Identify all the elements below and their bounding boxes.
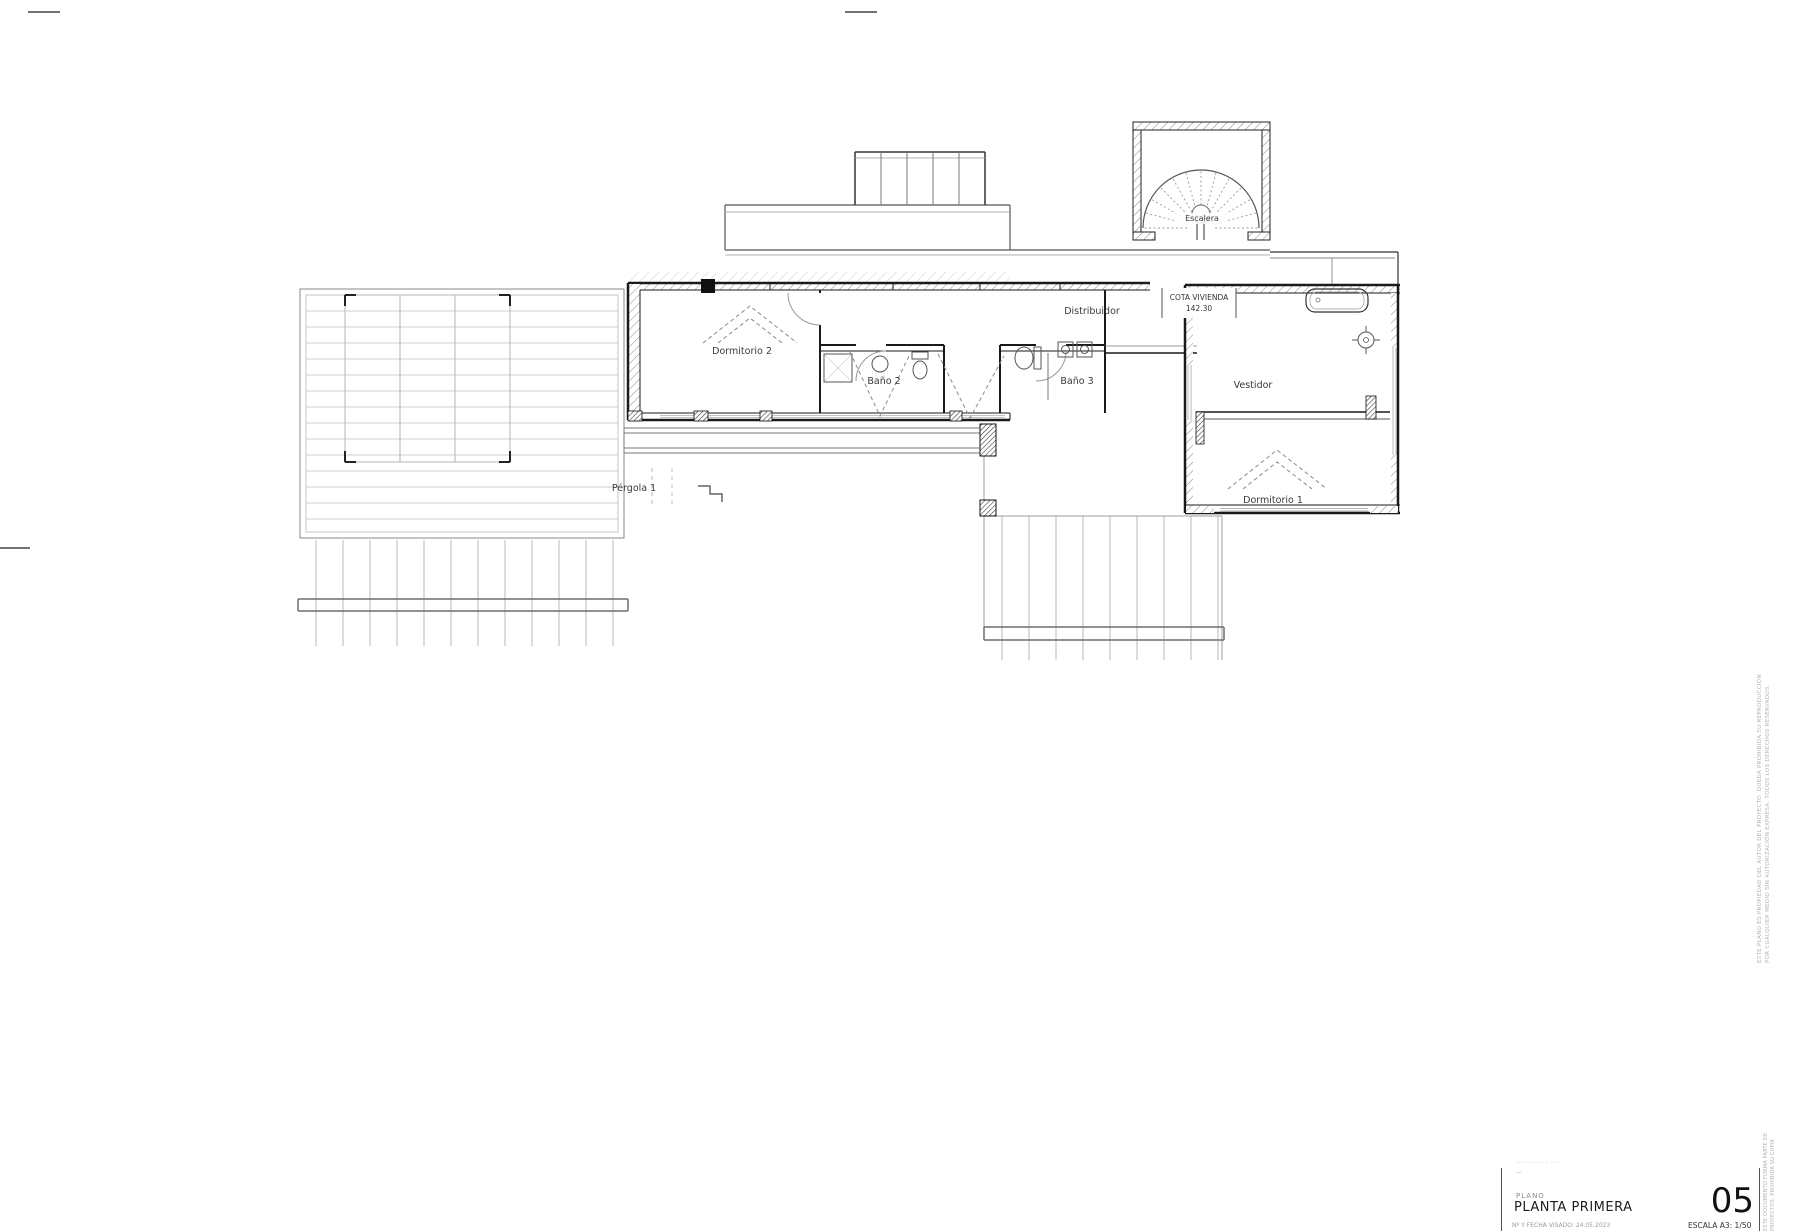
room-label-dormitorio1: Dormitorio 1 — [1243, 495, 1303, 506]
edge-disclaimer-line-2: POR CUALQUIER MEDIO SIN AUTORIZACIÓN EXP… — [1765, 755, 1771, 963]
scale-row: ESCALA A3: 1/50 — [1688, 1221, 1751, 1230]
room-label-bano2: Baño 2 — [867, 376, 900, 387]
floor-plan-svg: Escalera — [0, 0, 1800, 1231]
walkway — [624, 428, 984, 508]
title-block-side-note-1: ESTE DOCUMENTO FORMA PARTE DE — [1763, 1163, 1769, 1231]
room-label-distribuidor: Distribuidor — [1064, 306, 1120, 317]
left-deck — [298, 540, 628, 646]
room-label-bano3: Baño 3 — [1060, 376, 1093, 387]
title-block-left-rule — [1501, 1168, 1502, 1231]
title-block-right-rule — [1759, 1168, 1760, 1231]
title-block-tiny-row-2: — — [1516, 1169, 1523, 1176]
drawing-sheet: Escalera — [0, 0, 1800, 1231]
plano-label: PLANO — [1516, 1192, 1545, 1200]
visado-row: Nº Y FECHA VISADO: 24.05.2023 — [1512, 1222, 1610, 1229]
title-block-tiny-row-1: ··········· ··· — [1516, 1160, 1560, 1167]
cota-box: COTA VIVIENDA 142.30 — [1162, 288, 1236, 318]
floor-fills — [628, 122, 1400, 513]
room-label-escalera: Escalera — [1185, 214, 1219, 223]
title-block-side-note-2: PROYECTOS. PROHIBIDA SU COPIA — [1770, 1163, 1776, 1231]
room-label-pergola: Pérgola 1 — [612, 483, 656, 494]
room-label-vestidor: Vestidor — [1234, 380, 1273, 391]
plano-value: PLANTA PRIMERA — [1514, 1200, 1633, 1215]
edge-disclaimer-line-1: ESTE PLANO ES PROPIEDAD DEL AUTOR DEL PR… — [1757, 755, 1763, 963]
cota-line2: 142.30 — [1186, 304, 1212, 313]
cota-line1: COTA VIVIENDA — [1170, 293, 1229, 302]
pergola-structure — [300, 289, 624, 538]
junction-posts — [980, 424, 996, 516]
sheet-number: 05 — [1690, 1181, 1754, 1221]
room-label-dormitorio2: Dormitorio 2 — [712, 346, 772, 357]
